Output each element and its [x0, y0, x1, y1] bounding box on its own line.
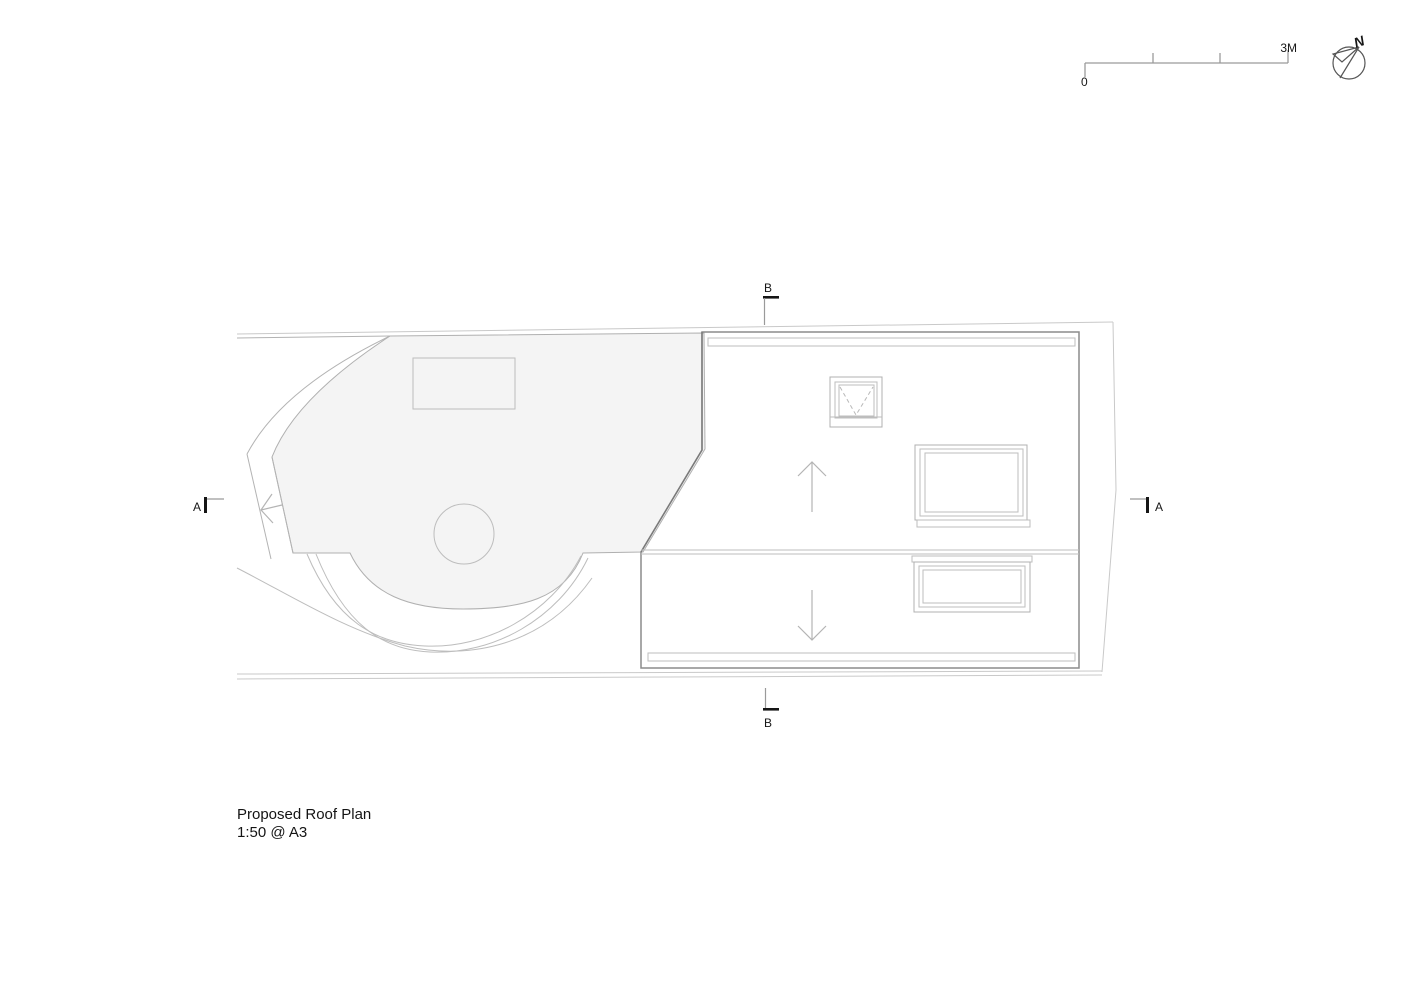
site-boundary-right	[1102, 322, 1116, 672]
section-bar-b-top	[763, 296, 779, 299]
drawing-sheet: 0 3M N B B A	[0, 0, 1414, 1000]
section-bar-b-bottom	[763, 708, 779, 711]
roof-plan-canvas: 0 3M N B B A	[0, 0, 1414, 1000]
left-roof-area	[237, 333, 705, 652]
section-label-b-bottom: B	[764, 716, 772, 730]
rooflight-upper-sill	[917, 520, 1030, 527]
right-roof-area	[641, 332, 1079, 668]
scale-bar-max-label: 3M	[1280, 41, 1297, 55]
scale-bar: 0 3M	[1081, 41, 1297, 89]
site-boundary-bottom-outer	[237, 671, 1102, 674]
drawing-scale-note: 1:50 @ A3	[237, 824, 307, 841]
gutter-top	[708, 338, 1075, 346]
fall-arrow-left	[261, 494, 282, 523]
section-marker-b-top: B	[763, 281, 779, 325]
title-block: Proposed Roof Plan 1:50 @ A3	[237, 806, 371, 841]
section-label-a-right: A	[1155, 500, 1163, 514]
slope-arrow-down-icon	[798, 590, 826, 640]
section-label-b-top: B	[764, 281, 772, 295]
strip-outer-line	[247, 454, 271, 559]
left-roof-plate	[272, 333, 705, 609]
rooflight-upper	[915, 445, 1030, 527]
rooflight-lower-sill	[912, 556, 1032, 562]
section-label-a-left: A	[193, 500, 201, 514]
scale-bar-zero-label: 0	[1081, 75, 1088, 89]
rooflight-small	[830, 377, 882, 427]
north-compass-icon: N	[1333, 32, 1367, 79]
section-bar-a-left	[204, 497, 207, 513]
slope-arrow-up-icon	[798, 462, 826, 512]
rooflight-upper-outer	[915, 445, 1027, 520]
drawing-title: Proposed Roof Plan	[237, 806, 371, 823]
section-marker-a-left: A	[193, 497, 224, 514]
section-marker-b-bottom: B	[763, 688, 779, 730]
section-bar-a-right	[1146, 497, 1149, 513]
rooflight-lower	[912, 556, 1032, 612]
left-roof-top-edge	[237, 336, 390, 338]
gutter-bottom	[648, 653, 1075, 661]
site-boundary-bottom-inner	[237, 675, 1102, 679]
section-marker-a-right: A	[1130, 497, 1163, 514]
